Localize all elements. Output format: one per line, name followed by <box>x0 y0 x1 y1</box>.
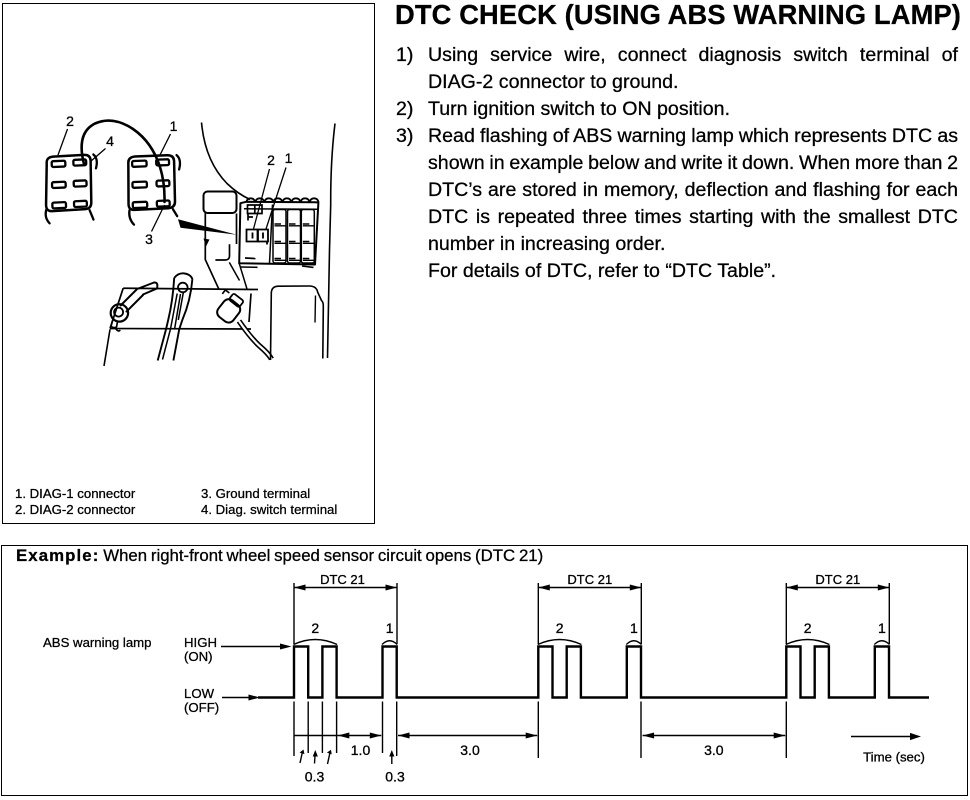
svg-text:3.0: 3.0 <box>460 742 480 758</box>
svg-text:0.3: 0.3 <box>385 769 405 785</box>
svg-text:2: 2 <box>311 620 319 636</box>
svg-text:DTC 21: DTC 21 <box>320 572 365 587</box>
svg-text:DTC 21: DTC 21 <box>815 572 860 587</box>
svg-text:0.3: 0.3 <box>305 769 325 785</box>
svg-text:1.0: 1.0 <box>351 742 371 758</box>
svg-text:1: 1 <box>630 620 638 636</box>
svg-text:1: 1 <box>878 620 886 636</box>
svg-text:Time (sec): Time (sec) <box>863 750 925 765</box>
svg-text:3.0: 3.0 <box>704 742 724 758</box>
svg-text:2: 2 <box>556 620 564 636</box>
svg-text:1: 1 <box>386 620 394 636</box>
svg-text:DTC 21: DTC 21 <box>567 572 612 587</box>
svg-text:2: 2 <box>804 620 812 636</box>
